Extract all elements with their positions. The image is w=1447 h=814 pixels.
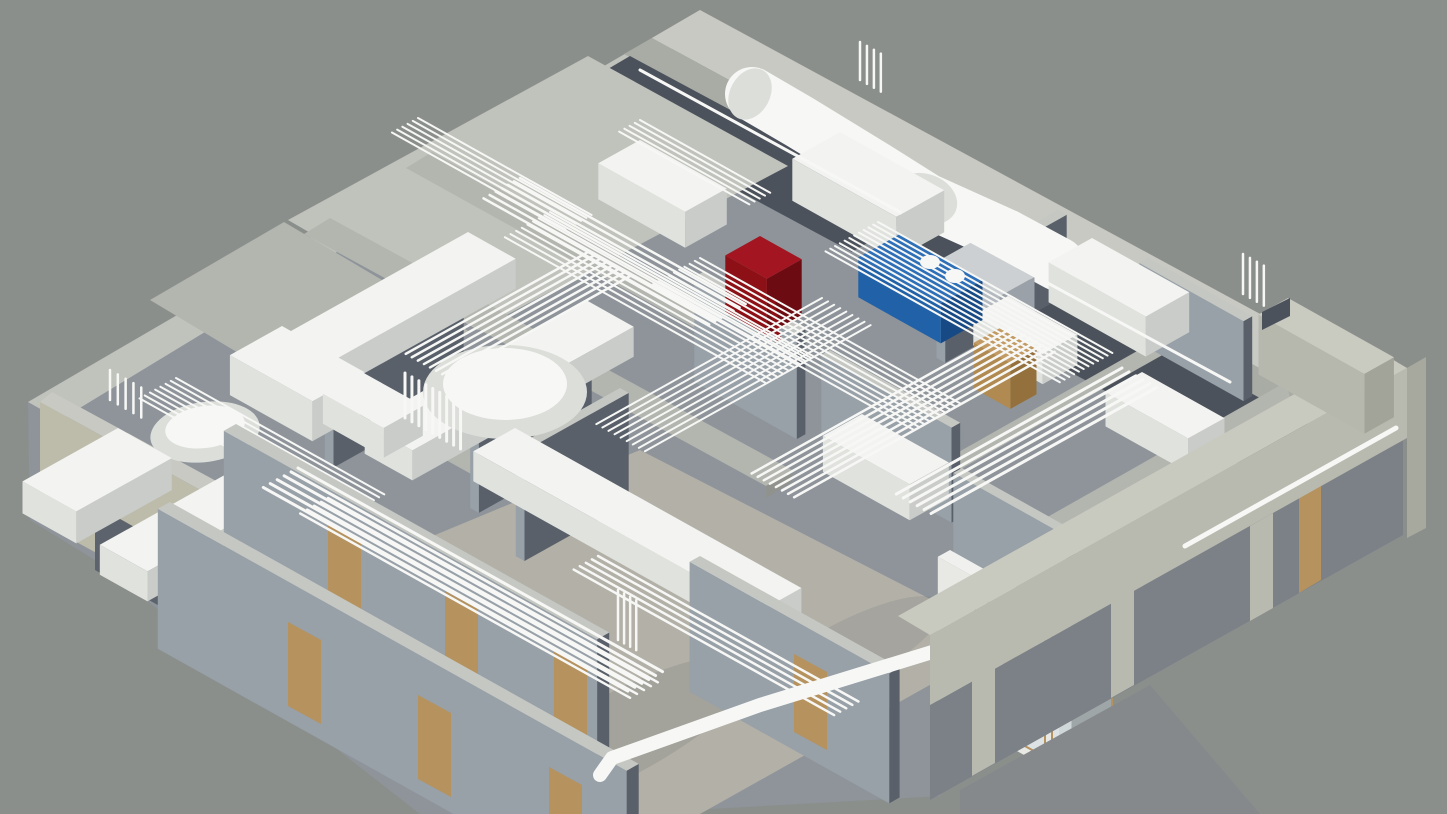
wood-column	[1299, 486, 1321, 593]
concrete-column	[972, 668, 995, 776]
building-corner	[1407, 357, 1426, 538]
concrete-column	[1250, 513, 1273, 621]
concrete-column	[1111, 590, 1134, 698]
isometric-building-cutaway-render	[0, 0, 1447, 814]
partition-wall	[1244, 316, 1253, 401]
front-wall	[627, 764, 639, 814]
front-wall	[889, 668, 899, 804]
bim-render-image	[0, 0, 1447, 814]
